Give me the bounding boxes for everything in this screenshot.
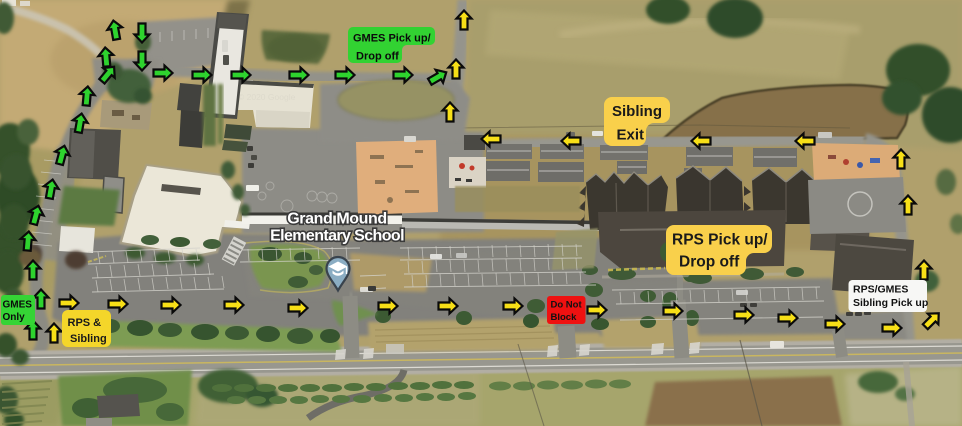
svg-text:Sibling: Sibling <box>70 333 107 345</box>
svg-text:Only: Only <box>3 312 26 323</box>
svg-text:RPS &: RPS & <box>68 317 102 329</box>
svg-text:© 2020 Google: © 2020 Google <box>238 92 296 102</box>
svg-text:Sibling: Sibling <box>612 103 662 120</box>
svg-text:Do Not: Do Not <box>551 300 583 311</box>
svg-text:Drop off: Drop off <box>679 254 740 271</box>
svg-text:RPS/GMES: RPS/GMES <box>853 284 908 296</box>
svg-text:RPS Pick up/: RPS Pick up/ <box>672 232 768 249</box>
svg-text:Exit: Exit <box>617 127 645 144</box>
svg-text:GMES Pick up/: GMES Pick up/ <box>353 33 431 45</box>
svg-text:Sibling Pick up: Sibling Pick up <box>853 297 928 309</box>
svg-text:Elementary School: Elementary School <box>270 228 404 245</box>
svg-text:GMES: GMES <box>3 300 33 311</box>
svg-text:Drop off: Drop off <box>356 51 399 63</box>
svg-text:Block: Block <box>551 312 578 323</box>
svg-text:Grand Mound: Grand Mound <box>287 211 387 228</box>
